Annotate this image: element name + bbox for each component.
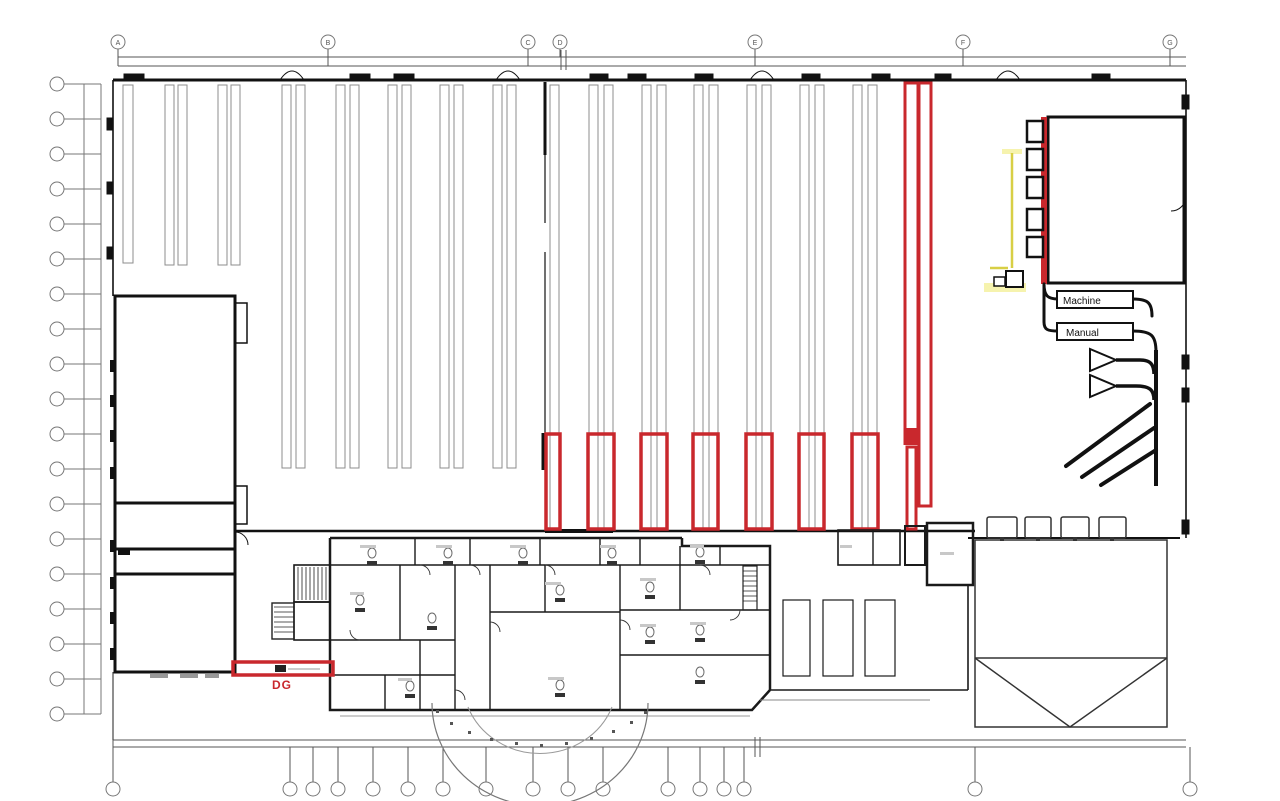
red-strip <box>907 447 916 529</box>
funnel-symbol <box>1090 349 1116 371</box>
racking-rows-left <box>123 85 516 468</box>
driveway-arc <box>432 703 648 801</box>
grid-label-g: G <box>1167 40 1172 47</box>
red-strip <box>905 83 918 432</box>
red-strip <box>919 83 931 506</box>
grid-label-b: B <box>326 40 331 47</box>
red-long-strips <box>904 83 932 529</box>
funnel-symbol <box>1090 375 1116 397</box>
bottom-dimension-axis <box>106 737 1197 796</box>
machine-label: Machine <box>1063 296 1101 307</box>
machine-area <box>1027 117 1184 486</box>
left-building-block <box>110 296 248 678</box>
grid-label-d: D <box>557 40 562 47</box>
grid-label-c: C <box>525 40 530 47</box>
machine-block-outline <box>1048 117 1184 283</box>
loading-dock-ramp <box>975 517 1167 727</box>
grid-label-a: A <box>116 40 121 47</box>
top-grid-axis <box>111 35 1186 70</box>
red-bar-annotation <box>233 662 333 675</box>
left-dimension-ladder <box>50 77 101 721</box>
grid-label-e: E <box>753 40 758 47</box>
plug-symbol <box>994 271 1023 287</box>
manual-label: Manual <box>1066 328 1099 339</box>
right-wing <box>760 523 973 700</box>
floor-plan-page: A B C D E F G <box>0 0 1280 801</box>
dg-label: DG <box>272 678 292 692</box>
floor-plan-drawing: A B C D E F G <box>0 0 1280 801</box>
grid-label-f: F <box>961 40 965 47</box>
racking-rows-middle <box>550 85 877 528</box>
red-strip-joint <box>904 428 920 445</box>
top-grid-labels: A B C D E F G <box>116 40 1173 47</box>
